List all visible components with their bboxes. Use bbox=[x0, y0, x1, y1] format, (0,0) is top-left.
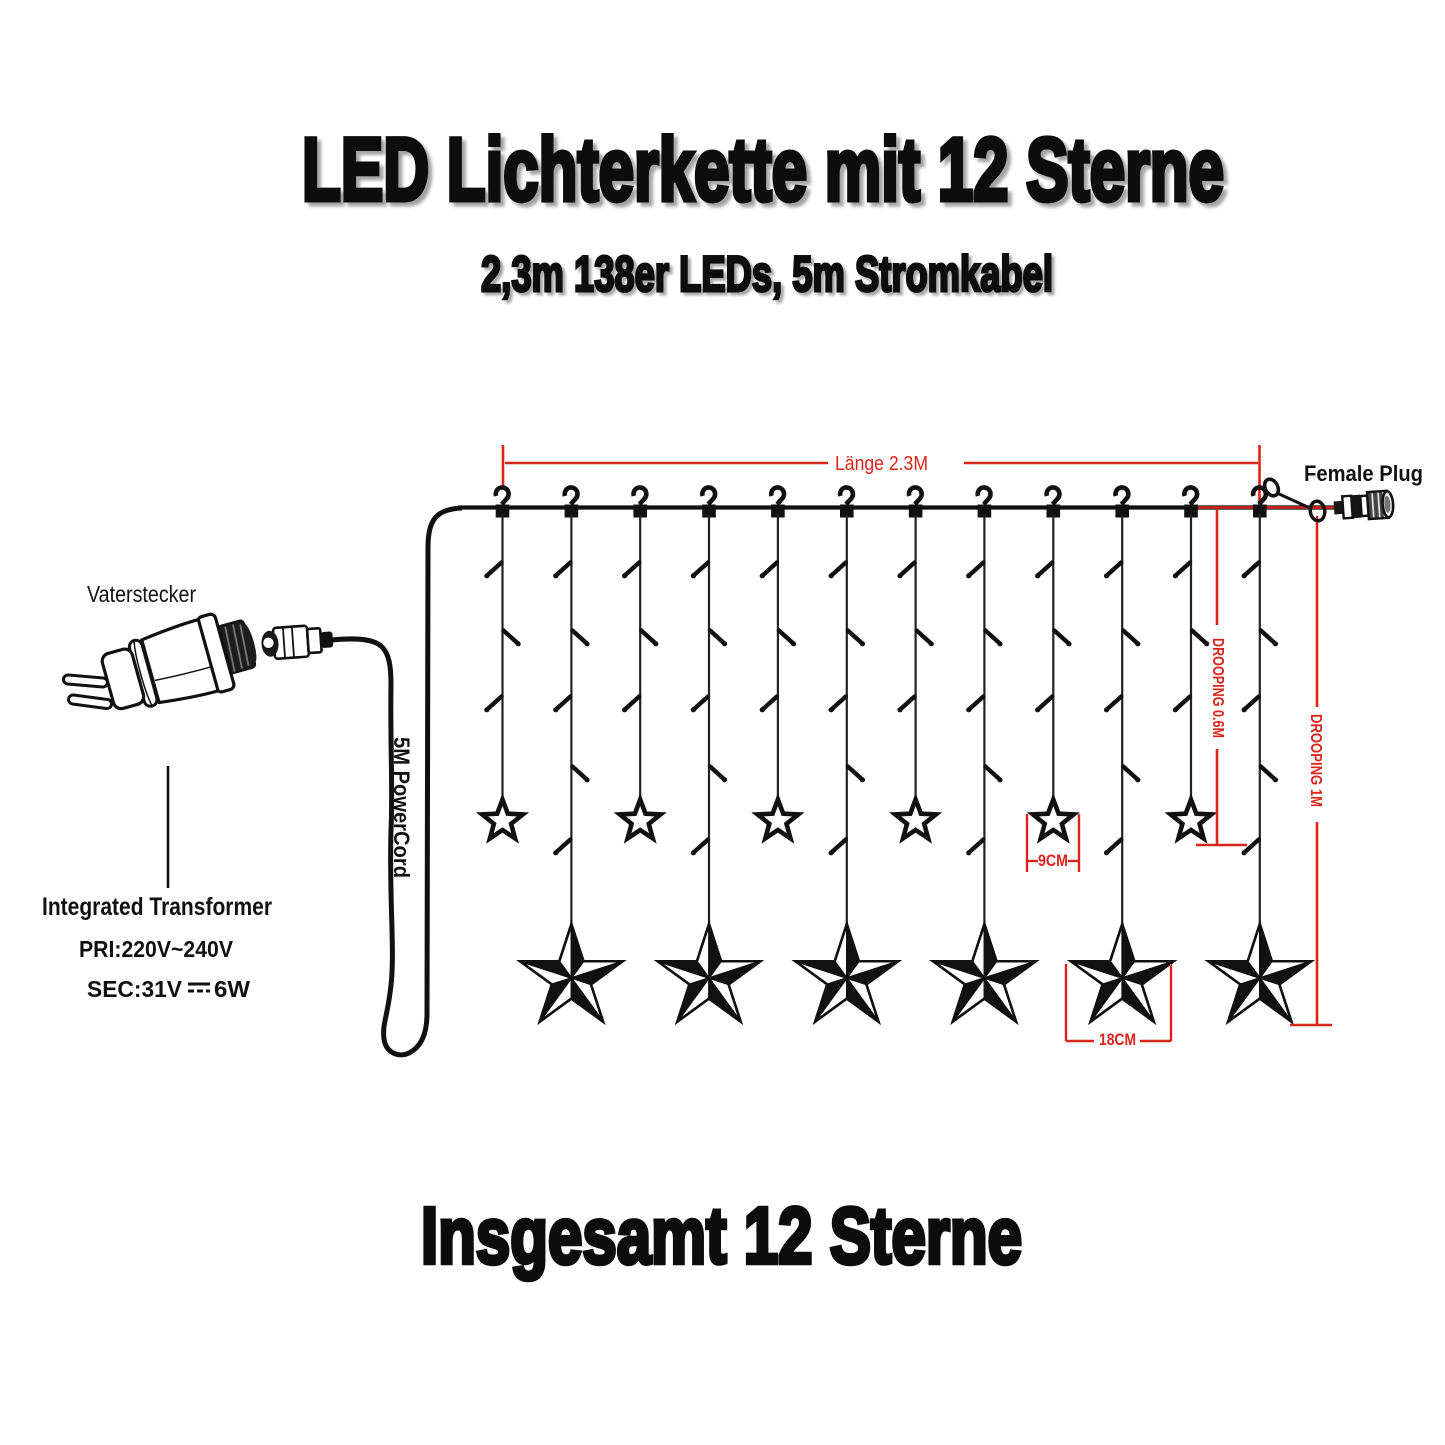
svg-text:Länge 2.3M: Länge 2.3M bbox=[835, 453, 928, 475]
svg-text:9CM: 9CM bbox=[1038, 852, 1068, 870]
svg-text:DROOPING 0.6M: DROOPING 0.6M bbox=[1209, 638, 1226, 738]
svg-text:Vaterstecker: Vaterstecker bbox=[87, 581, 196, 607]
svg-text:PRI:220V~240V: PRI:220V~240V bbox=[79, 936, 233, 962]
svg-text:SEC:31V: SEC:31V bbox=[87, 976, 182, 1002]
svg-text:Integrated Transformer: Integrated Transformer bbox=[42, 893, 272, 921]
svg-text:Insgesamt 12 Sterne: Insgesamt 12 Sterne bbox=[421, 1191, 1022, 1280]
svg-text:DROOPING 1M: DROOPING 1M bbox=[1307, 714, 1324, 807]
svg-text:LED Lichterkette mit 12 Sterne: LED Lichterkette mit 12 Sterne bbox=[302, 119, 1224, 219]
svg-text:5M PowerCord: 5M PowerCord bbox=[389, 737, 414, 878]
svg-text:18CM: 18CM bbox=[1099, 1031, 1136, 1049]
svg-text:Female Plug: Female Plug bbox=[1304, 461, 1423, 486]
svg-text:2,3m 138er LEDs, 5m Stromkabel: 2,3m 138er LEDs, 5m Stromkabel bbox=[481, 246, 1053, 302]
svg-text:6W: 6W bbox=[214, 976, 251, 1002]
